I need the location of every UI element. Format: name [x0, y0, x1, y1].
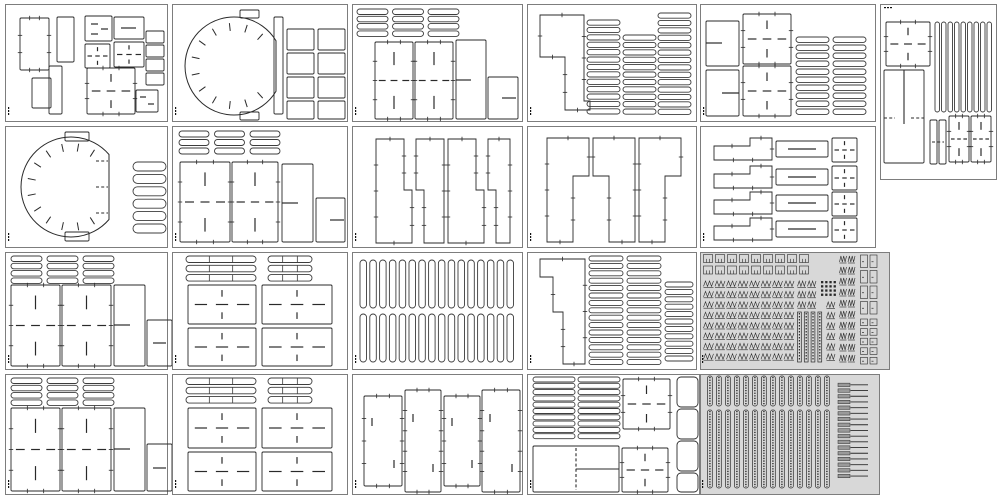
sheet-14	[353, 253, 523, 370]
cutting-layout-canvas	[0, 0, 1000, 499]
part-mk	[8, 233, 9, 241]
sheet-15	[528, 253, 697, 370]
part-mk	[8, 355, 9, 363]
sheet-19	[353, 375, 523, 495]
sheet-1	[6, 5, 168, 122]
sheet-9	[353, 127, 523, 248]
sheet-13	[173, 253, 348, 370]
part-mk	[884, 7, 892, 8]
part-mk	[703, 233, 704, 241]
sheet-3	[353, 5, 523, 122]
sheet-12	[6, 253, 173, 370]
sheet-20	[528, 375, 700, 495]
part-mk	[530, 480, 531, 488]
sheet-10	[528, 127, 697, 248]
part-mk	[530, 233, 531, 241]
part-mk	[175, 107, 176, 115]
part-mk	[8, 107, 9, 115]
sheet-18	[173, 375, 348, 495]
part-mk	[530, 107, 531, 115]
part-mk	[355, 355, 356, 363]
sheet-8	[173, 127, 348, 248]
sheet-7	[6, 127, 168, 248]
sheets-svg	[0, 0, 1000, 499]
part-mk	[530, 355, 531, 363]
part-mk	[175, 355, 176, 363]
part-mk	[355, 480, 356, 488]
sheet-6	[881, 5, 997, 180]
part-mk	[355, 107, 356, 115]
sheet-4	[528, 5, 697, 122]
sheet-5	[701, 5, 876, 122]
part-mk	[355, 233, 356, 241]
part-mk	[702, 355, 703, 363]
part-mk	[703, 107, 704, 115]
sheet-17	[6, 375, 173, 495]
part-mk	[8, 480, 9, 488]
part-mk	[175, 233, 176, 241]
sheet-21	[701, 375, 880, 495]
part-mk	[702, 480, 703, 488]
sheet-16	[701, 253, 890, 370]
sheet-11	[701, 127, 876, 248]
sheet-2	[173, 5, 348, 122]
part-mk	[175, 480, 176, 488]
